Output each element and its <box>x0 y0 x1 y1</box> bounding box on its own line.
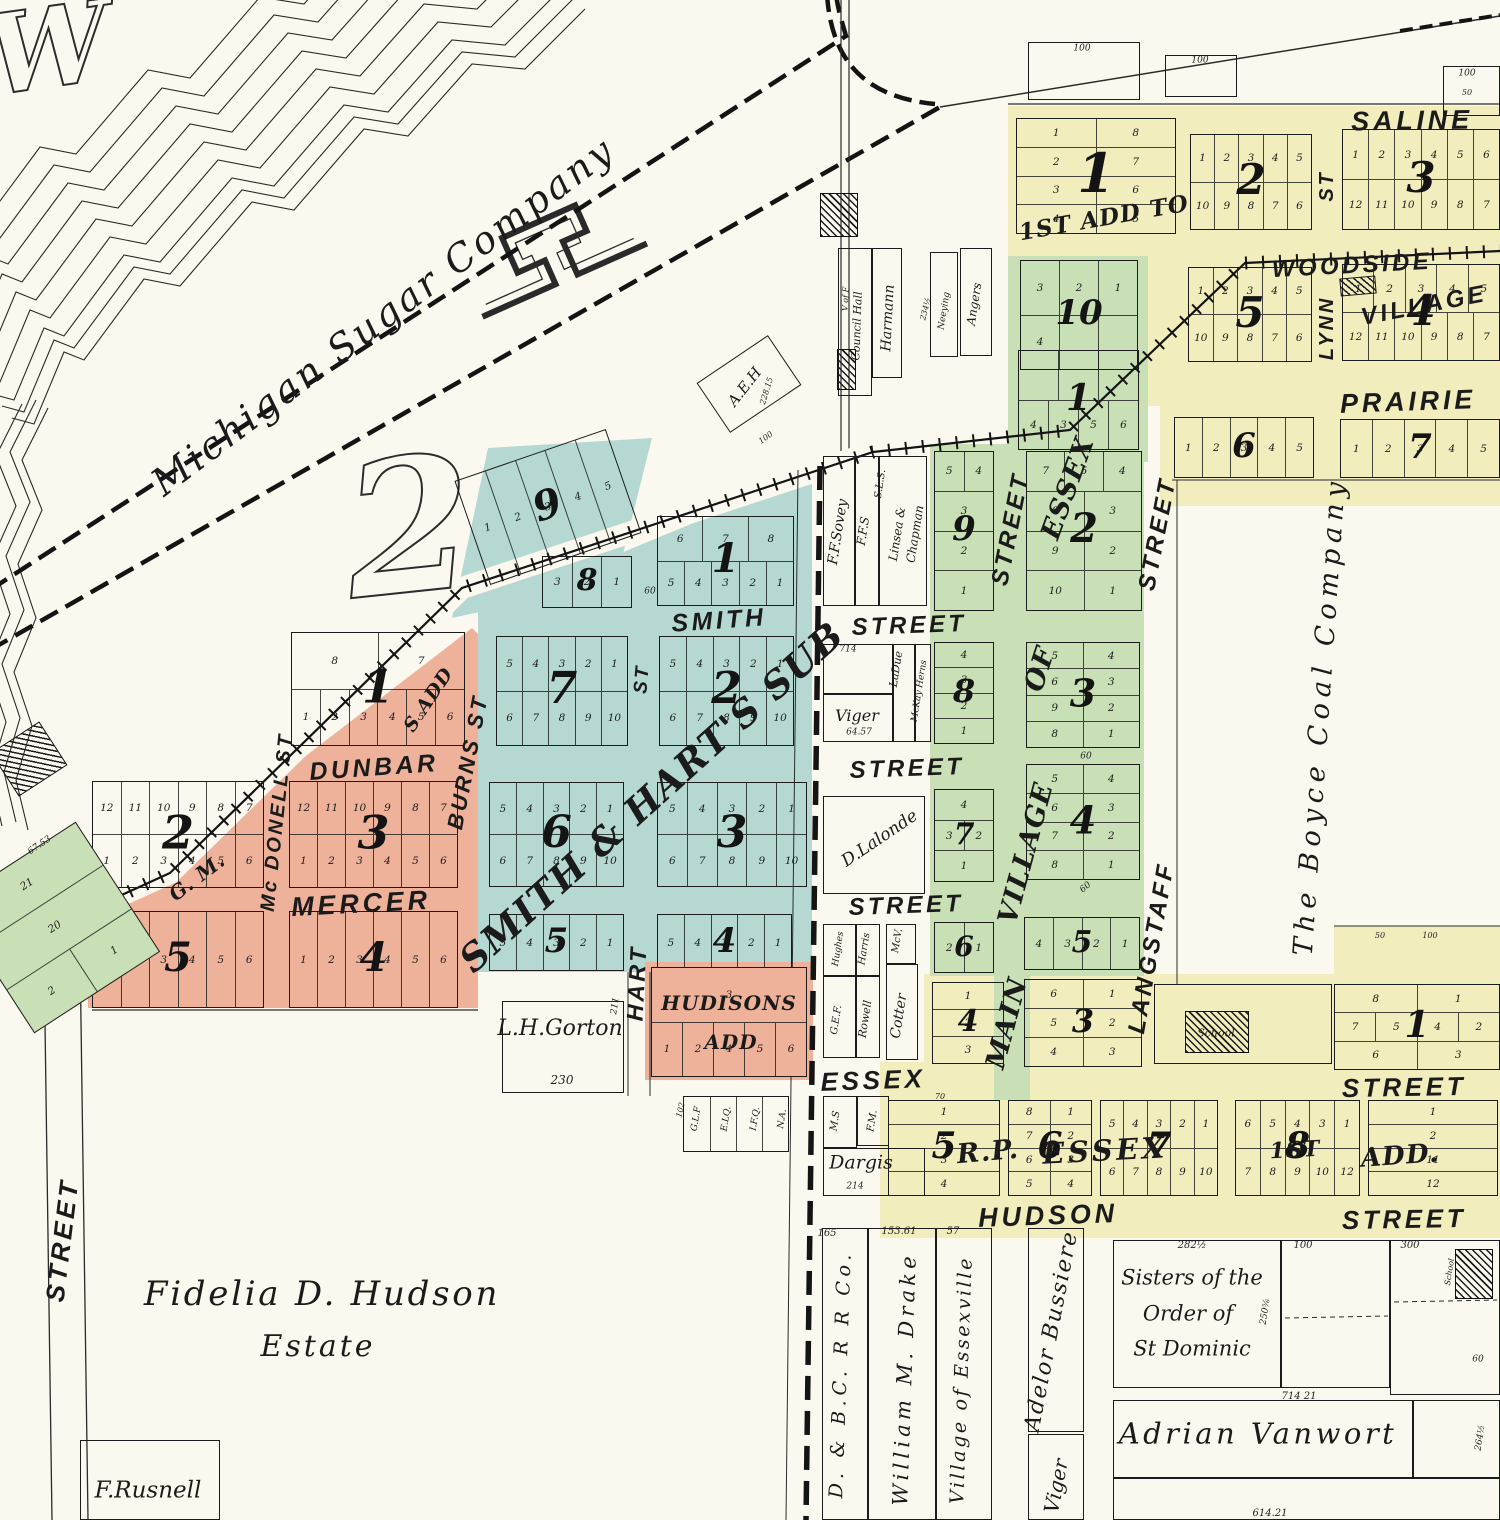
lot-number: 6 <box>235 835 264 887</box>
number-label-60: 60 <box>644 588 655 597</box>
subdivision-title-essex: ESSEX <box>1042 1133 1169 1169</box>
lot-number: 1 <box>1083 851 1140 879</box>
number-label-64-57: 64.57 <box>846 729 872 738</box>
owner-label-l-h-gorton: L.H.Gorton <box>497 1018 622 1040</box>
block-number: 5 <box>1072 924 1093 959</box>
number-label-57: 57 <box>947 1227 960 1237</box>
lot-number: 12 <box>93 782 121 834</box>
lot-number: 6 <box>660 692 686 746</box>
block-number: 5 <box>545 921 569 961</box>
block-smith-hart-8: 3218 <box>542 556 632 608</box>
lot-number: 5 <box>1287 135 1311 182</box>
lot-number: 7 <box>522 692 548 746</box>
number-label-50: 50 <box>1462 89 1472 97</box>
block-prairie-7: 123457 <box>1340 419 1500 478</box>
lot-number: 10 <box>1189 315 1213 361</box>
lot-number: 1 <box>601 637 627 691</box>
lot-number: 4 <box>935 790 993 820</box>
lot-number: 2 <box>1368 130 1394 179</box>
block-number: 7 <box>954 816 975 851</box>
lot-number: 5 <box>1009 1172 1050 1195</box>
street-label-smith: SMITH <box>671 605 768 637</box>
lot-number: 6 <box>658 517 702 561</box>
lot-number: 5 <box>490 783 516 834</box>
owner-label-order-of: Order of <box>1143 1304 1233 1325</box>
lot-number: 2 <box>1458 1013 1499 1040</box>
block-prairie-6: 123456 <box>1174 417 1314 478</box>
number-label-614-21: 614.21 <box>1253 1509 1288 1519</box>
lot-number: 6 <box>429 835 457 887</box>
block-number: 5 <box>1235 288 1264 337</box>
owner-label-v-of-f: V of F <box>842 287 851 311</box>
lot-number: 6 <box>1236 1101 1260 1148</box>
block-mcdonell-4: 1234564 <box>289 911 458 1008</box>
lot-number: 4 <box>684 915 711 970</box>
lot-number: 4 <box>889 1172 999 1195</box>
street-label-lynn: LYNN <box>1317 296 1337 360</box>
subdivision-title-hudisons: HUDISONS <box>661 993 797 1013</box>
number-label-714-21: 714 21 <box>1282 1392 1317 1402</box>
number-label-282: 282½ <box>1178 1241 1207 1251</box>
lot-number: 1 <box>764 915 791 970</box>
lot-number: 1 <box>1194 1101 1217 1148</box>
lot-number: 1 <box>776 783 806 834</box>
block-mcdonell-2: 1211109871234562 <box>92 781 264 888</box>
lot-number: 2 <box>317 835 345 887</box>
lot-number: 5 <box>1447 130 1473 179</box>
owner-label-fidelia-d-hudson: Fidelia D. Hudson <box>144 1277 500 1311</box>
number-label-230: 230 <box>551 1074 574 1086</box>
lot-number: 2 <box>1214 135 1238 182</box>
street-label-saline: SALINE <box>1351 106 1473 135</box>
lot-number: 7 <box>1236 1149 1260 1196</box>
lot-number: 6 <box>490 835 516 886</box>
number-label-100: 100 <box>1458 70 1475 79</box>
block-number: 3 <box>1072 1002 1094 1040</box>
lot-number: 1 <box>1098 261 1137 315</box>
number-label-70: 70 <box>935 1093 945 1101</box>
lot-number: 7 <box>235 782 264 834</box>
lot-number: 1 <box>1084 571 1142 610</box>
block-rp-essex-1r: 817542631 <box>1334 984 1500 1070</box>
block-number: 1 <box>362 659 394 713</box>
block-number: 3 <box>1070 670 1096 715</box>
lot-number: 4 <box>684 562 711 606</box>
lot-number: 9 <box>746 835 776 886</box>
lot-number: 8 <box>401 782 429 834</box>
block-number: 10 <box>1055 293 1102 333</box>
lot-number: 6 <box>497 692 522 746</box>
owner-label-f-rusnell: F.Rusnell <box>95 1480 202 1503</box>
lot-number: 4 <box>1263 135 1287 182</box>
block-essex-6: 216 <box>934 922 994 973</box>
subdivision-title-1st: 1ST <box>1269 1138 1321 1163</box>
lot-number: 6 <box>1108 401 1138 450</box>
lot-number: 11 <box>121 782 150 834</box>
owner-label-dargis: Dargis <box>829 1154 893 1173</box>
lot-number: 5 <box>497 637 522 691</box>
lot-number: 6 <box>1473 130 1499 179</box>
street-label-st: ST <box>1317 170 1337 201</box>
lot-number: 12 <box>1369 1172 1497 1195</box>
lot-number: 2 <box>1202 418 1230 477</box>
lot-number: 1 <box>889 1101 999 1124</box>
street-label-hart: HART <box>624 944 651 1021</box>
lot-number: 1 <box>596 915 623 970</box>
block-number: 1 <box>1404 1004 1429 1046</box>
section-numeral-w: W <box>0 0 127 121</box>
lot-number: 5 <box>401 835 429 887</box>
block-woodside-3: 1234561211109873 <box>1342 129 1500 230</box>
building-footprint-3 <box>1455 1249 1493 1299</box>
owner-label-harmann: Harmann <box>879 284 896 352</box>
lot-number: 7 <box>687 835 717 886</box>
block-number: 5 <box>164 934 192 981</box>
parcel-box-28 <box>1113 1478 1500 1520</box>
block-number: 6 <box>954 929 973 962</box>
lot-number: 8 <box>1447 180 1473 229</box>
block-smith-hart-4: 543214 <box>657 914 792 971</box>
lot-number: 4 <box>1025 1038 1083 1066</box>
lot-number: 7 <box>1335 1013 1375 1040</box>
lot-number: 4 <box>686 637 713 691</box>
number-label-714: 714 <box>839 646 856 655</box>
lot-number: 2 <box>569 915 596 970</box>
block-number: 7 <box>547 663 578 714</box>
lot-number: 2 <box>575 637 601 691</box>
lot-number: 3 <box>543 557 572 607</box>
number-label-165: 165 <box>817 1229 836 1239</box>
section-numeral-2: 2 <box>333 411 485 641</box>
lot-number: 5 <box>1285 418 1313 477</box>
lot-number: 5 <box>658 915 684 970</box>
block-number: 3 <box>1406 153 1435 202</box>
block-number: 8 <box>577 563 598 598</box>
street-label-street: STREET <box>848 892 964 920</box>
street-label-street: STREET <box>849 755 965 783</box>
parcel-box-27 <box>1413 1400 1500 1478</box>
number-label-60: 60 <box>1472 1356 1483 1365</box>
lot-number: 1 <box>1050 1101 1092 1124</box>
lot-number: 5 <box>401 912 429 1007</box>
lot-number: 2 <box>121 835 150 887</box>
subdivision-title-add: ADD <box>704 1032 757 1052</box>
lot-number: 2 <box>317 912 345 1007</box>
lot-number: 1 <box>1343 130 1368 179</box>
lot-number: 10 <box>601 692 627 746</box>
owner-label-council-hall: Council Hall <box>850 291 863 360</box>
block-smith-hart-7: 543216789107 <box>496 636 628 746</box>
number-label-50: 50 <box>1375 932 1385 940</box>
block-number: 2 <box>1236 155 1265 204</box>
lot-number: 5 <box>660 637 686 691</box>
lot-number: 8 <box>748 517 793 561</box>
lot-number: 4 <box>516 783 543 834</box>
lot-number: 11 <box>317 782 345 834</box>
lot-number: 8 <box>1447 313 1473 360</box>
lot-number: 7 <box>1473 313 1499 360</box>
lot-number: 4 <box>1083 765 1140 793</box>
owner-label-viger: Viger <box>835 708 879 724</box>
lot-number: 4 <box>1257 418 1285 477</box>
owner-label-school: School <box>1197 1028 1235 1039</box>
lot-number: 1 <box>1341 420 1372 477</box>
lot-number: 2 <box>1372 420 1404 477</box>
lot-number: 7 <box>1263 183 1287 230</box>
owner-label-sisters-of-the: Sisters of the <box>1121 1268 1263 1289</box>
block-number: 1 <box>1077 141 1115 205</box>
lot-number: 2 <box>737 915 764 970</box>
block-hudisons-add: 312456 <box>651 967 807 1077</box>
lot-number: 8 <box>206 782 235 834</box>
lot-number: 4 <box>1435 420 1467 477</box>
lot-number: 1 <box>1189 268 1213 314</box>
block-number: 1 <box>1066 377 1091 419</box>
lot-number: 10 <box>1191 183 1214 230</box>
lot-number: 3 <box>1021 261 1059 315</box>
lot-number: 1 <box>1369 1101 1497 1124</box>
lot-number: 1 <box>1175 418 1202 477</box>
number-label-60: 60 <box>1080 753 1091 762</box>
lot-number: 9 <box>1213 315 1238 361</box>
block-number: 5 <box>931 1125 956 1167</box>
block-smith-hart-1: 678543211 <box>657 516 794 606</box>
parcel-box-24 <box>1281 1240 1390 1388</box>
lot-number: 12 <box>1334 1149 1359 1196</box>
number-label-100: 100 <box>1422 932 1437 940</box>
lot-number: 4 <box>1025 918 1053 969</box>
owner-label-estate: Estate <box>260 1332 375 1362</box>
block-number: 6 <box>1232 426 1256 466</box>
lot-number: 1 <box>766 562 793 606</box>
lot-number: 1 <box>935 571 993 610</box>
number-label-100: 100 <box>1073 45 1090 54</box>
block-essex-5: 43215 <box>1024 917 1140 970</box>
block-number: 4 <box>360 934 388 981</box>
plat-map-canvas: 2W SALINESTLYNNWOODSIDEVILLAGEPRAIRIESMI… <box>0 0 1500 1520</box>
lot-number: 4 <box>1019 401 1048 450</box>
block-number: 4 <box>713 921 737 961</box>
lot-number: 6 <box>1287 183 1311 230</box>
lot-number: 9 <box>575 692 601 746</box>
lot-number: 1 <box>652 1023 682 1077</box>
block-number: 3 <box>357 805 389 859</box>
lot-number: 1 <box>601 557 631 607</box>
street-label-st: ST <box>631 663 653 694</box>
lot-number: 1 <box>1083 722 1140 747</box>
block-essex-7: 43217 <box>934 789 994 882</box>
number-label-214: 214 <box>846 1183 863 1192</box>
lot-number: 10 <box>776 835 806 886</box>
block-number: 4 <box>1070 797 1096 842</box>
lot-number: 2 <box>1170 1101 1193 1148</box>
block-number: 3 <box>717 806 748 857</box>
block-number: 1 <box>712 535 740 582</box>
lot-number: 10 <box>1194 1149 1217 1196</box>
lot-number: 11 <box>1368 180 1394 229</box>
lot-number: 1 <box>290 912 317 1007</box>
lot-number: 4 <box>687 783 717 834</box>
building-footprint-0 <box>820 193 858 237</box>
lot-number: 7 <box>1262 315 1287 361</box>
lot-number: 6 <box>775 1023 806 1077</box>
street-label-prairie: PRAIRIE <box>1340 386 1477 418</box>
number-label-100: 100 <box>1293 1241 1312 1251</box>
street-label-street: STREET <box>1342 1073 1467 1101</box>
lot-number: 5 <box>1467 420 1499 477</box>
lot-number: 10 <box>1027 571 1084 610</box>
lot-number: 2 <box>320 690 349 746</box>
lot-number: 4 <box>1103 452 1141 491</box>
street-label-street: STREET <box>851 612 967 640</box>
lot-number: 4 <box>935 643 993 667</box>
lot-number: 5 <box>935 452 964 491</box>
lot-number: 1 <box>935 851 993 881</box>
block-number: 9 <box>952 509 976 549</box>
owner-label-st-dominic: St Dominic <box>1133 1339 1251 1360</box>
lot-number <box>1098 351 1138 400</box>
lot-number: 12 <box>1343 180 1368 229</box>
lot-number: 1 <box>290 835 317 887</box>
lot-number: 6 <box>658 835 687 886</box>
street-label-hudson: HUDSON <box>978 1200 1119 1232</box>
number-label-153-61: 153.61 <box>882 1227 917 1237</box>
number-label-300: 300 <box>1400 1241 1419 1251</box>
street-label-essex: ESSEX <box>820 1065 926 1095</box>
number-label-100: 100 <box>1191 57 1208 66</box>
lot-number: 12 <box>290 782 317 834</box>
lot-number: 6 <box>1286 315 1311 361</box>
block-number: 8 <box>953 672 975 710</box>
lot-number: 4 <box>522 637 548 691</box>
block-number: 7 <box>1408 427 1432 467</box>
lot-number: 1 <box>1334 1101 1359 1148</box>
lot-number: 4 <box>964 452 994 491</box>
lot-number: 5 <box>206 912 235 1007</box>
lot-number: 9 <box>1170 1149 1193 1196</box>
lot-number: 2 <box>1213 268 1238 314</box>
lot-number: 4 <box>1083 643 1140 668</box>
lot-number: 5 <box>658 562 684 606</box>
subdivision-title-add: ADD. <box>1360 1140 1440 1171</box>
lot-number: 2 <box>746 783 776 834</box>
street-label-street: STREET <box>1342 1205 1467 1233</box>
block-number: 4 <box>958 1004 979 1039</box>
lot-number: 1 <box>935 719 993 743</box>
lot-number: 1 <box>1191 135 1214 182</box>
lot-number: 9 <box>1214 183 1238 230</box>
subdivision-title-r-p: R.P. <box>956 1136 1021 1168</box>
lot-number: 3 <box>1083 1038 1142 1066</box>
block-essex-9: 543219 <box>934 451 994 611</box>
lot-number <box>1019 351 1058 400</box>
block-essex-8: 43218 <box>934 642 994 744</box>
lot-number: 6 <box>235 912 264 1007</box>
block-number: 2 <box>162 805 194 859</box>
lot-number: 7 <box>1473 180 1499 229</box>
lot-number: 8 <box>1027 722 1083 747</box>
lot-number: 4 <box>1050 1172 1092 1195</box>
lot-number: 6 <box>429 912 457 1007</box>
owner-label-adrian-vanwort: Adrian Vanwort <box>1119 1420 1398 1449</box>
lot-number: 8 <box>1009 1101 1050 1124</box>
block-mcdonell-3: 1211109871234563 <box>289 781 458 888</box>
lot-number: 2 <box>739 562 766 606</box>
block-woodside-2: 123451098762 <box>1190 134 1312 230</box>
